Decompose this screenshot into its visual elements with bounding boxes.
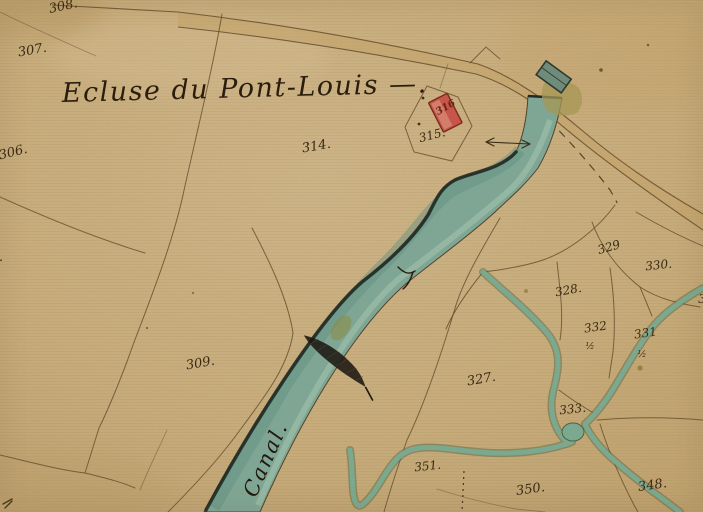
olive-dot — [524, 289, 528, 293]
stream-junction-pond — [562, 423, 584, 441]
parcel-label-331-fraction: ½ — [637, 349, 646, 360]
ink-speck — [599, 68, 603, 72]
ink-speck — [146, 327, 148, 329]
parcel-label-332-fraction: ½ — [585, 341, 594, 352]
map-viewport[interactable]: Ecluse du Pont-Louis —. Canal. 308. 307.… — [0, 0, 703, 512]
olive-dot — [637, 365, 642, 370]
cadastral-map-svg: Ecluse du Pont-Louis —. Canal. 308. 307.… — [0, 0, 703, 512]
ink-speck — [647, 44, 650, 47]
ink-dot — [418, 123, 421, 126]
parcel-label-330: 330. — [645, 257, 673, 274]
parcel-label-333: 333. — [559, 401, 587, 418]
ink-speck — [192, 292, 194, 294]
parcel-label-351: 351. — [414, 458, 442, 475]
